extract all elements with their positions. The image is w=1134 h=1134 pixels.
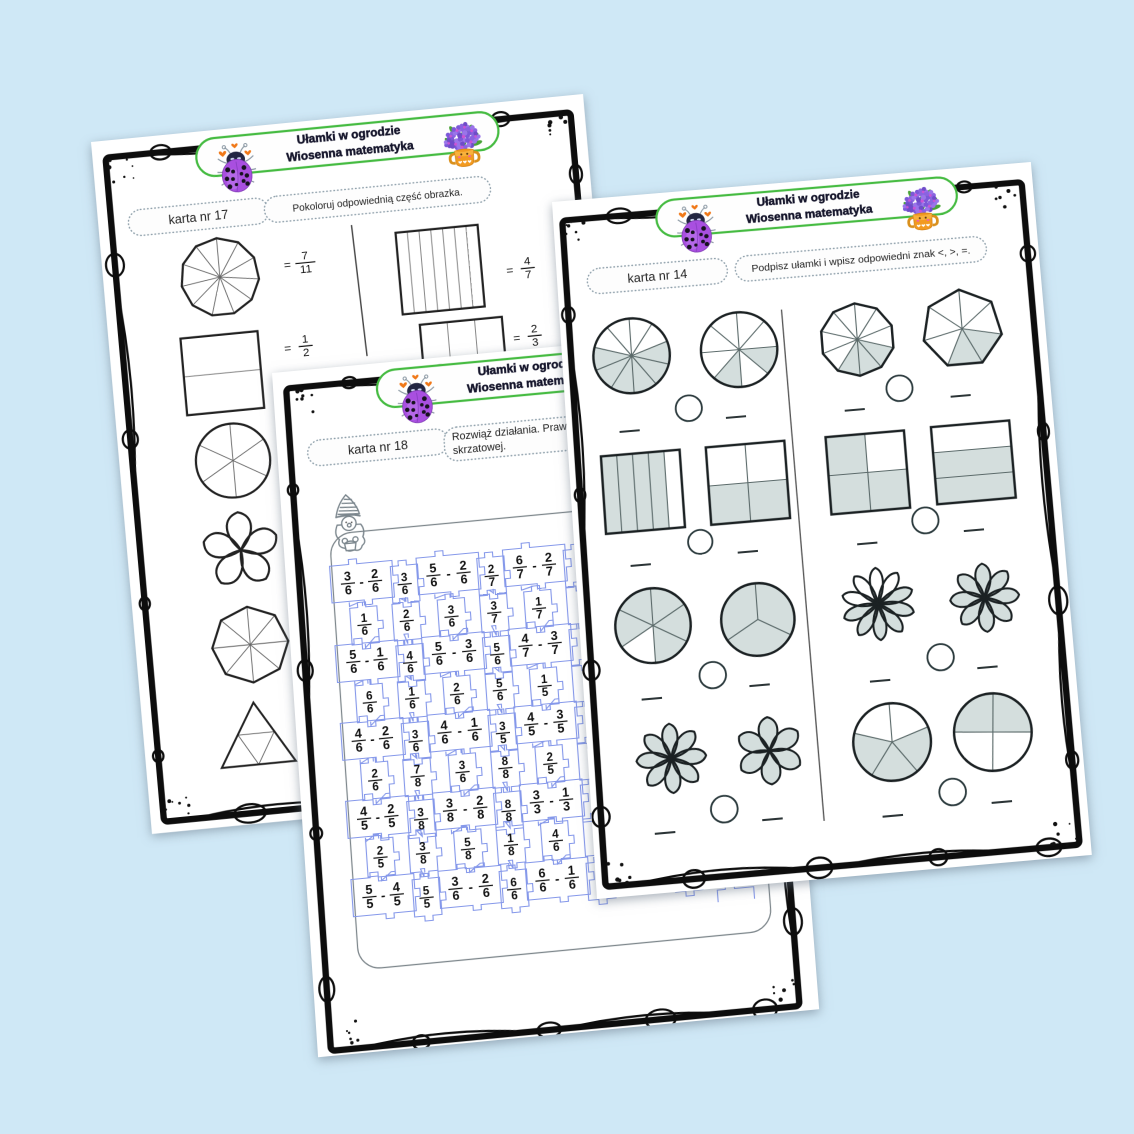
svg-text:-: - — [462, 801, 467, 817]
svg-text:3: 3 — [401, 572, 408, 585]
svg-text:6: 6 — [459, 773, 466, 786]
svg-text:1: 1 — [301, 334, 308, 347]
svg-text:11: 11 — [299, 263, 312, 276]
svg-text:6: 6 — [382, 738, 390, 753]
svg-text:-: - — [468, 879, 473, 895]
svg-text:5: 5 — [542, 687, 550, 700]
svg-text:-: - — [446, 566, 451, 581]
svg-text:4: 4 — [521, 631, 529, 646]
svg-text:3: 3 — [532, 788, 540, 803]
svg-text:8: 8 — [465, 850, 472, 863]
svg-text:6: 6 — [482, 886, 490, 901]
svg-text:5: 5 — [493, 642, 501, 655]
svg-text:2: 2 — [459, 558, 467, 573]
svg-text:6: 6 — [568, 877, 576, 892]
svg-text:-: - — [543, 715, 548, 730]
svg-text:=: = — [283, 258, 291, 273]
svg-text:5: 5 — [377, 858, 385, 871]
svg-text:6: 6 — [511, 890, 518, 903]
svg-text:6: 6 — [372, 581, 380, 596]
svg-text:2: 2 — [403, 608, 410, 621]
svg-text:3: 3 — [451, 874, 459, 889]
svg-text:5: 5 — [429, 561, 437, 576]
svg-text:3: 3 — [412, 729, 419, 742]
svg-text:6: 6 — [553, 842, 560, 855]
svg-text:8: 8 — [477, 807, 485, 822]
svg-text:7: 7 — [551, 643, 559, 658]
svg-text:3: 3 — [465, 637, 473, 652]
svg-text:5: 5 — [349, 647, 357, 662]
svg-text:1: 1 — [567, 863, 575, 878]
svg-text:3: 3 — [458, 760, 465, 773]
svg-text:2: 2 — [453, 682, 460, 695]
svg-text:=: = — [284, 341, 292, 356]
svg-text:6: 6 — [372, 781, 379, 794]
svg-text:4: 4 — [360, 804, 368, 819]
svg-text:2: 2 — [476, 793, 484, 808]
svg-text:=: = — [506, 263, 514, 278]
svg-text:8: 8 — [414, 777, 421, 790]
svg-text:1: 1 — [562, 785, 570, 800]
svg-text:7: 7 — [536, 609, 543, 622]
svg-text:-: - — [380, 887, 385, 903]
svg-text:8: 8 — [504, 799, 511, 812]
svg-text:4: 4 — [406, 650, 414, 663]
svg-text:1: 1 — [470, 715, 478, 730]
svg-text:6: 6 — [454, 695, 461, 708]
svg-text:6: 6 — [460, 572, 468, 587]
svg-text:-: - — [451, 644, 456, 659]
svg-text:4: 4 — [523, 256, 531, 269]
svg-text:6: 6 — [452, 888, 460, 903]
svg-text:5: 5 — [528, 724, 536, 739]
svg-text:6: 6 — [466, 651, 474, 666]
svg-text:2: 2 — [530, 323, 537, 336]
svg-text:=: = — [513, 331, 521, 346]
svg-text:6: 6 — [367, 703, 374, 716]
svg-text:5: 5 — [496, 678, 504, 691]
svg-text:-: - — [549, 793, 554, 809]
svg-text:5: 5 — [393, 894, 401, 909]
svg-text:-: - — [364, 652, 369, 667]
svg-text:6: 6 — [448, 617, 455, 630]
svg-text:3: 3 — [499, 721, 506, 734]
svg-text:6: 6 — [494, 655, 501, 668]
svg-text:3: 3 — [445, 796, 453, 811]
svg-text:1: 1 — [541, 673, 549, 686]
svg-text:3: 3 — [563, 799, 571, 814]
svg-text:6: 6 — [538, 866, 546, 881]
svg-text:6: 6 — [377, 659, 385, 674]
svg-text:8: 8 — [502, 769, 509, 782]
svg-text:6: 6 — [407, 663, 414, 676]
svg-text:2: 2 — [544, 550, 552, 565]
svg-text:6: 6 — [441, 732, 449, 747]
svg-text:4: 4 — [354, 726, 362, 741]
svg-text:5: 5 — [361, 818, 369, 833]
svg-text:7: 7 — [545, 564, 553, 579]
svg-text:-: - — [457, 723, 462, 738]
svg-text:6: 6 — [366, 690, 373, 703]
svg-text:2: 2 — [381, 724, 389, 739]
svg-text:5: 5 — [500, 734, 508, 747]
svg-text:2: 2 — [481, 871, 489, 886]
svg-text:5: 5 — [423, 898, 431, 911]
svg-text:7: 7 — [522, 645, 530, 660]
svg-text:-: - — [359, 574, 364, 589]
svg-text:6: 6 — [510, 877, 517, 890]
svg-text:6: 6 — [404, 622, 411, 635]
svg-text:6: 6 — [355, 740, 363, 755]
svg-text:8: 8 — [501, 756, 508, 769]
svg-text:3: 3 — [550, 628, 558, 643]
svg-text:8: 8 — [446, 810, 454, 825]
svg-text:-: - — [554, 871, 559, 887]
svg-text:3: 3 — [343, 569, 351, 584]
svg-text:7: 7 — [301, 250, 308, 263]
svg-text:2: 2 — [387, 802, 395, 817]
svg-text:3: 3 — [490, 600, 497, 613]
svg-text:6: 6 — [344, 583, 352, 598]
svg-text:6: 6 — [539, 880, 547, 895]
svg-text:8: 8 — [420, 854, 427, 867]
svg-text:3: 3 — [419, 841, 426, 854]
svg-text:2: 2 — [376, 845, 383, 858]
svg-text:5: 5 — [557, 721, 565, 736]
svg-text:2: 2 — [371, 768, 378, 781]
svg-text:1: 1 — [507, 832, 515, 845]
svg-text:1: 1 — [535, 596, 543, 609]
svg-text:8: 8 — [508, 846, 515, 859]
svg-text:3: 3 — [532, 336, 539, 349]
svg-text:5: 5 — [434, 639, 442, 654]
svg-text:3: 3 — [556, 707, 564, 722]
svg-text:8: 8 — [505, 812, 512, 825]
svg-text:6: 6 — [515, 553, 523, 568]
svg-text:1: 1 — [376, 645, 384, 660]
svg-text:-: - — [370, 731, 375, 747]
svg-text:7: 7 — [488, 577, 495, 590]
svg-text:5: 5 — [422, 885, 430, 898]
svg-text:6: 6 — [471, 729, 479, 744]
svg-text:-: - — [532, 558, 537, 573]
svg-text:3: 3 — [417, 807, 424, 820]
svg-text:5: 5 — [547, 764, 555, 777]
svg-text:6: 6 — [430, 575, 438, 590]
svg-text:8: 8 — [418, 820, 425, 833]
svg-text:7: 7 — [516, 567, 524, 582]
svg-text:5: 5 — [365, 882, 373, 897]
svg-text:3: 3 — [447, 604, 454, 617]
svg-text:5: 5 — [464, 837, 472, 850]
svg-text:1: 1 — [408, 686, 416, 699]
svg-text:2: 2 — [546, 751, 553, 764]
svg-text:6: 6 — [497, 691, 504, 704]
svg-text:6: 6 — [435, 653, 443, 668]
svg-text:4: 4 — [392, 880, 400, 895]
svg-text:4: 4 — [552, 828, 560, 841]
svg-text:7: 7 — [491, 613, 498, 626]
svg-text:5: 5 — [366, 897, 374, 912]
svg-text:-: - — [375, 809, 380, 825]
svg-text:6: 6 — [361, 626, 368, 639]
svg-text:6: 6 — [413, 742, 420, 755]
svg-text:2: 2 — [371, 566, 379, 581]
svg-text:4: 4 — [527, 710, 535, 725]
svg-text:-: - — [537, 636, 542, 651]
svg-text:6: 6 — [350, 662, 358, 677]
svg-text:7: 7 — [414, 764, 421, 777]
svg-text:7: 7 — [525, 269, 532, 282]
svg-text:1: 1 — [360, 612, 368, 625]
svg-text:2: 2 — [488, 564, 495, 577]
svg-text:5: 5 — [388, 816, 396, 831]
svg-text:2: 2 — [303, 347, 310, 360]
svg-text:6: 6 — [409, 699, 416, 712]
svg-text:6: 6 — [402, 585, 409, 598]
svg-text:4: 4 — [440, 718, 448, 733]
svg-text:3: 3 — [533, 802, 541, 817]
